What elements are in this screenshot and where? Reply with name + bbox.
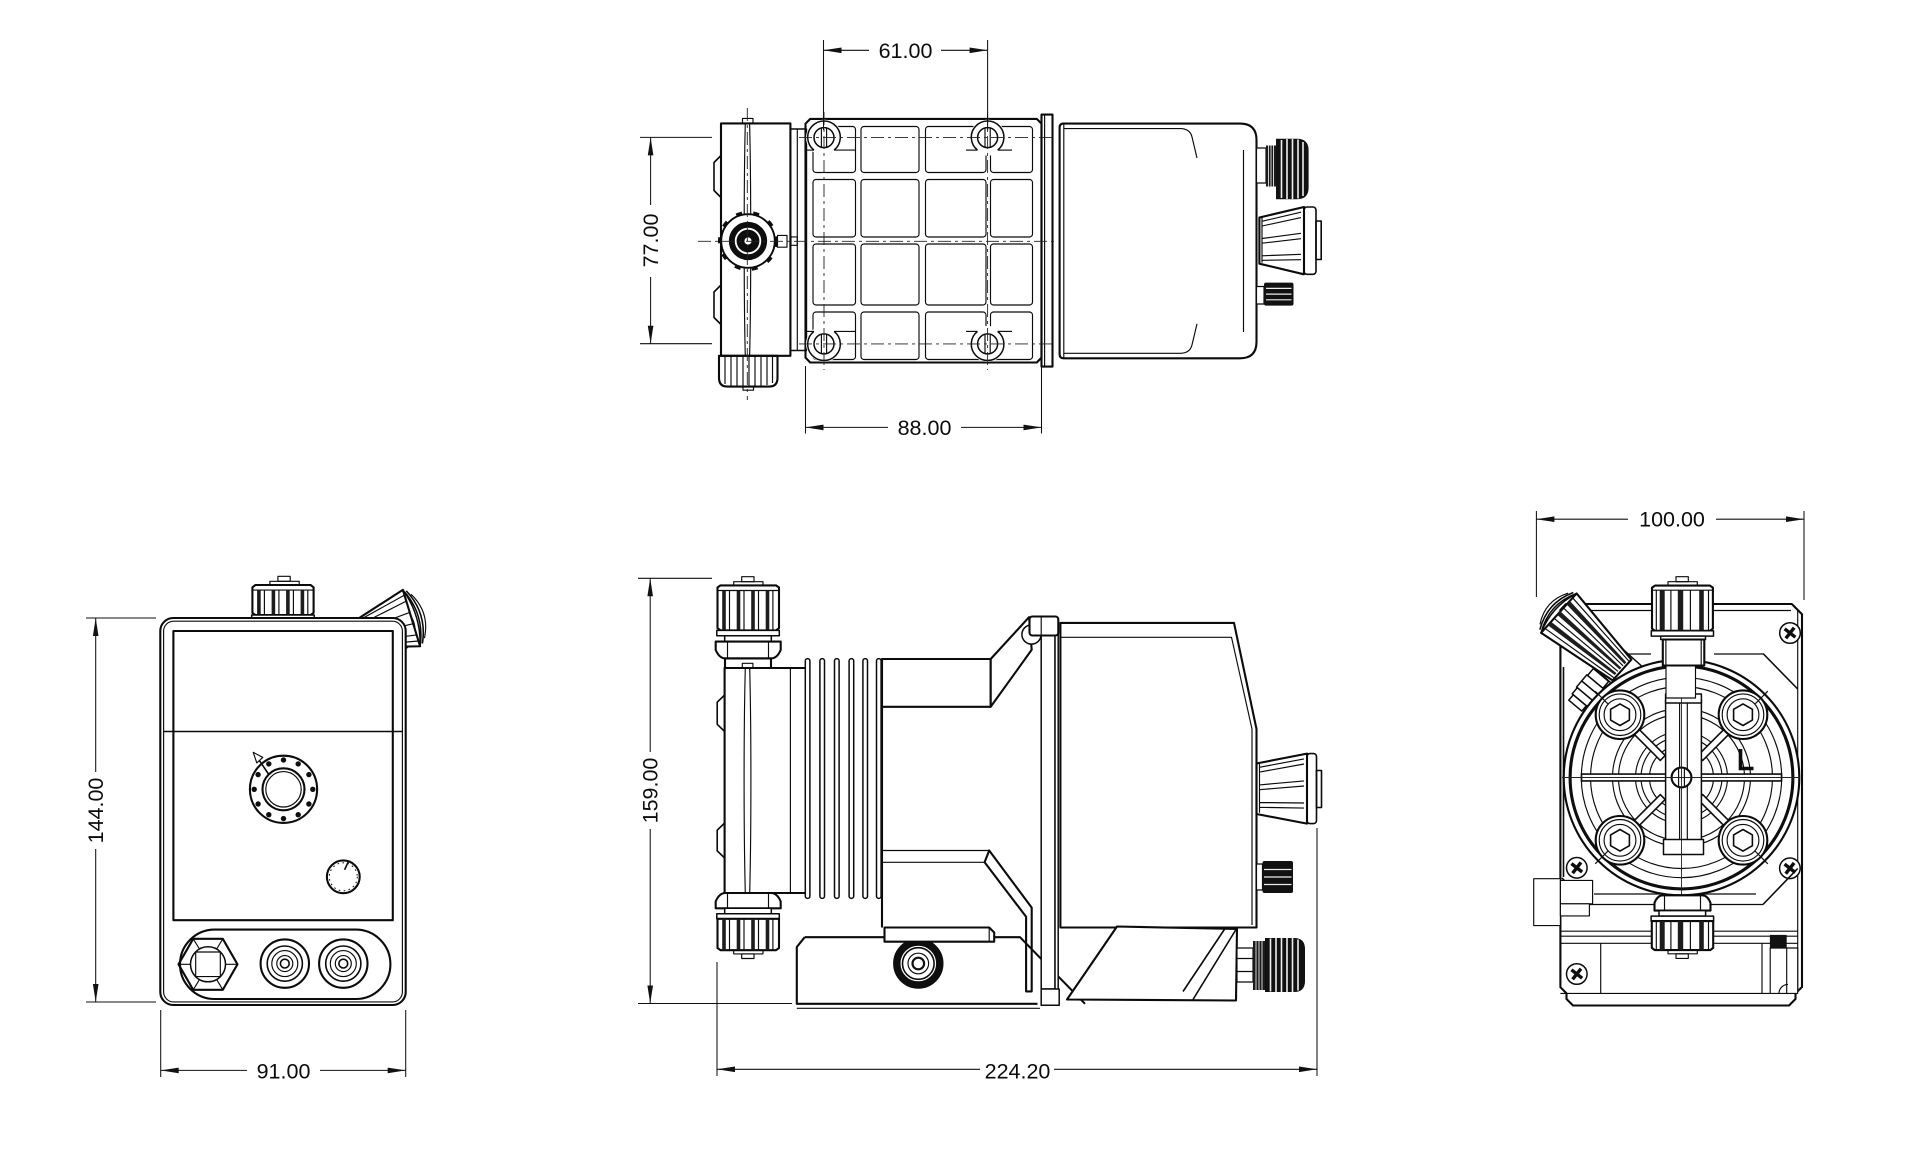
svg-text:144.00: 144.00	[84, 778, 108, 844]
svg-text:100.00: 100.00	[1639, 508, 1705, 532]
svg-text:77.00: 77.00	[639, 214, 663, 268]
svg-text:88.00: 88.00	[898, 416, 952, 440]
svg-text:91.00: 91.00	[257, 1059, 311, 1083]
svg-text:61.00: 61.00	[879, 39, 933, 63]
svg-text:224.20: 224.20	[985, 1059, 1051, 1083]
svg-text:159.00: 159.00	[639, 758, 663, 824]
